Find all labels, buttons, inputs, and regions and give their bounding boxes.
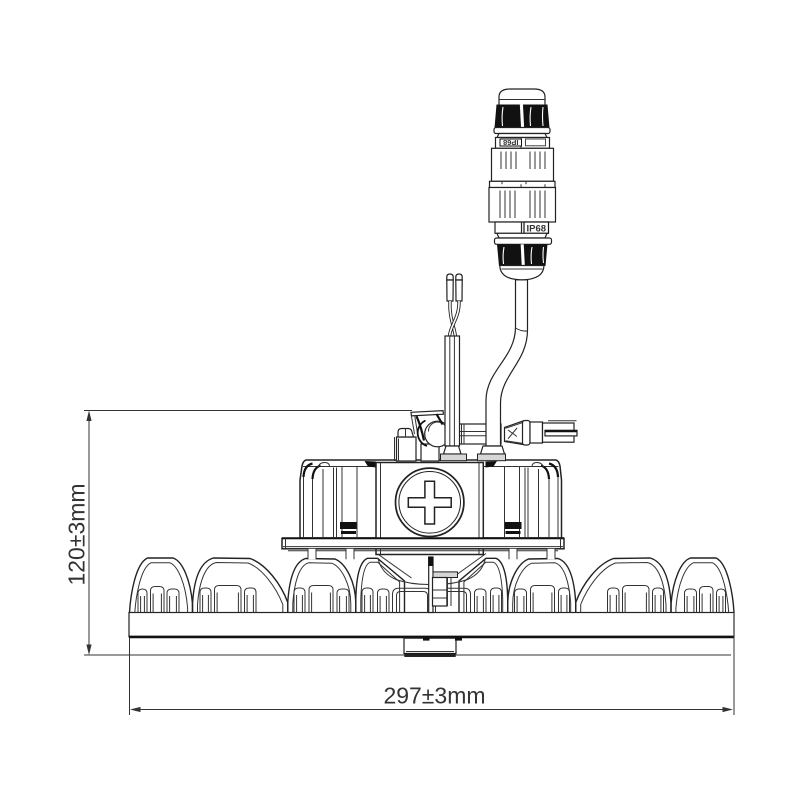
svg-text:120±3mm: 120±3mm xyxy=(64,483,90,585)
svg-text:IP68: IP68 xyxy=(503,138,518,147)
svg-text:297±3mm: 297±3mm xyxy=(383,683,485,709)
svg-text:IP68: IP68 xyxy=(527,223,547,234)
